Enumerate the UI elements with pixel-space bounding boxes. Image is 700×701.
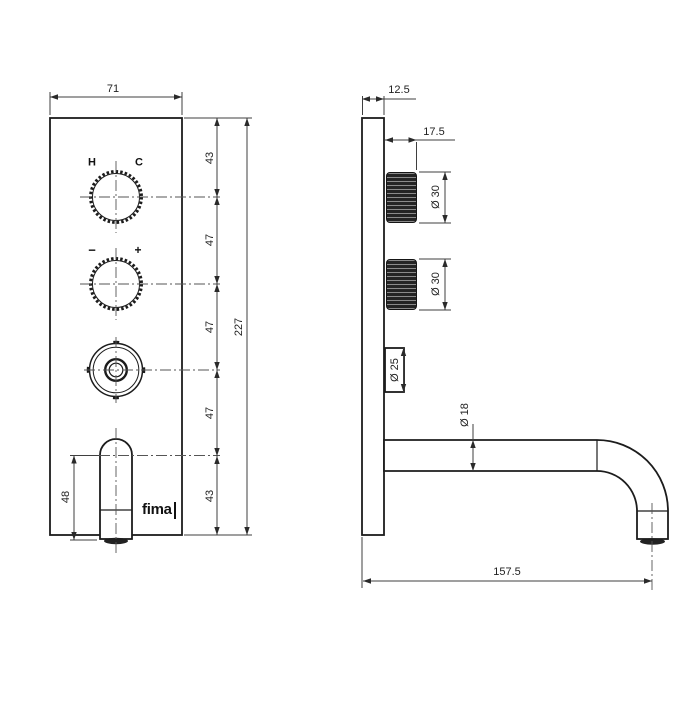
dim-width-label: 71 xyxy=(105,83,121,95)
brand-logo-bar xyxy=(174,502,176,519)
side-handle-top-knurled xyxy=(386,172,417,223)
dim-spout-diameter-label: Ø 18 xyxy=(459,401,471,429)
dim-handle-mid-diameter-label: Ø 30 xyxy=(430,270,442,298)
side-view xyxy=(362,96,668,591)
cold-label: C xyxy=(135,158,143,169)
brand-logo: fima xyxy=(142,502,176,519)
dim-reach-label: 157.5 xyxy=(491,566,523,578)
dim-spout-drop-label: 48 xyxy=(60,489,72,505)
dim-diverter-diameter-label: Ø 25 xyxy=(389,356,401,384)
dim-segment-label: 47 xyxy=(204,405,216,421)
brand-logo-text: fima xyxy=(142,502,172,517)
dim-handle-top-diameter-label: Ø 30 xyxy=(430,183,442,211)
side-thickness-dimension xyxy=(362,96,416,115)
dim-segment-label: 43 xyxy=(204,150,216,166)
dim-thickness-label: 12.5 xyxy=(386,84,411,96)
technical-drawing-canvas: 71 43 47 47 47 43 227 48 H C − + fima 12… xyxy=(0,0,700,701)
drawing-linework xyxy=(0,0,700,701)
side-plate xyxy=(362,118,384,535)
side-handle-mid-knurled xyxy=(386,259,417,310)
dim-segment-label: 43 xyxy=(204,488,216,504)
front-view xyxy=(50,92,252,556)
minus-icon: − xyxy=(88,244,96,257)
dim-segment-label: 47 xyxy=(204,232,216,248)
dim-overall-height-label: 227 xyxy=(233,316,245,338)
dim-projection-label: 17.5 xyxy=(421,126,446,138)
side-spout xyxy=(384,440,668,591)
plus-icon: + xyxy=(134,244,141,256)
dim-segment-label: 47 xyxy=(204,319,216,335)
side-reach-dimension xyxy=(362,537,652,588)
side-projection-dimension xyxy=(385,140,455,170)
front-width-dimension xyxy=(50,92,182,115)
hot-label: H xyxy=(88,158,96,169)
